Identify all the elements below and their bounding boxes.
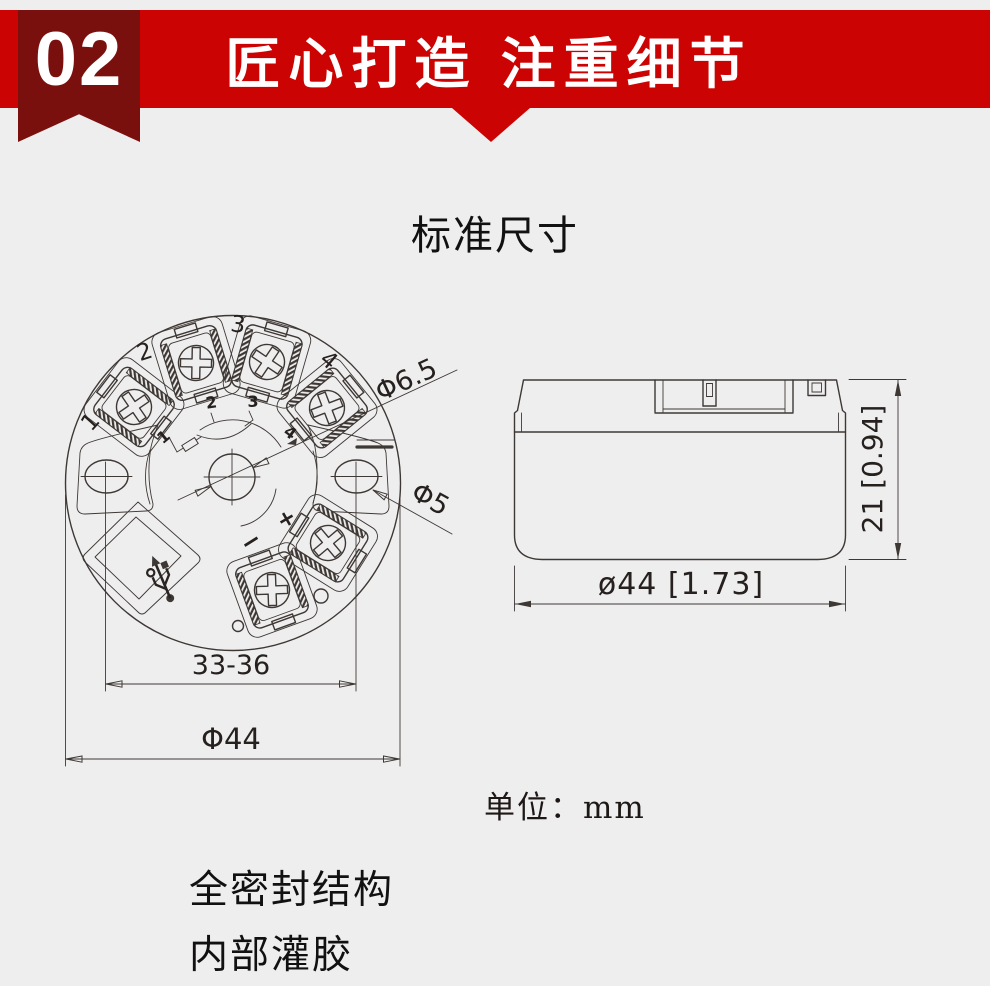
dim-width-label: ø44 [1.73] bbox=[598, 567, 764, 602]
dim-height-label: 21 [0.94] bbox=[856, 405, 889, 534]
schematic-number-3: 3 bbox=[247, 392, 258, 411]
usb-icon bbox=[142, 551, 183, 606]
terminal-plus bbox=[275, 491, 382, 595]
terminal-number-2: 2 bbox=[134, 338, 156, 367]
dim-outer-diameter: Φ44 bbox=[66, 495, 401, 766]
polarity-plus-label: + bbox=[273, 504, 301, 535]
usb-port-pocket bbox=[83, 502, 200, 614]
top-clip bbox=[808, 380, 826, 396]
dim-hole-span: 33-36 bbox=[106, 462, 357, 691]
schematic-number-2: 2 bbox=[204, 392, 218, 412]
dim-height: 21 [0.94] bbox=[849, 380, 906, 560]
connector-recess bbox=[655, 380, 793, 413]
pin-hole-right bbox=[314, 589, 328, 603]
pin-hole-bottom bbox=[233, 621, 244, 632]
feature-text-1: 全密封结构 bbox=[189, 859, 394, 915]
side-view-drawing: 21 [0.94] ø44 [1.73] bbox=[515, 380, 907, 612]
dim-side-hole-label: Φ5 bbox=[406, 477, 455, 523]
dim-hole-span-label: 33-36 bbox=[192, 650, 270, 681]
unit-note: 单位：mm bbox=[484, 782, 646, 827]
dim-center-hole-label: Φ6.5 bbox=[371, 353, 442, 408]
dim-side-hole: Φ5 bbox=[373, 477, 454, 534]
feature-text-2: 内部灌胶 bbox=[189, 924, 353, 980]
page: { "page": { "bg_color": "#efeeee" }, "he… bbox=[0, 0, 990, 986]
dim-width: ø44 [1.73] bbox=[515, 566, 846, 611]
dimension-drawing: 1 2 3 4 1 2 3 4 + − bbox=[0, 0, 990, 986]
top-view-drawing: 1 2 3 4 1 2 3 4 + − bbox=[66, 311, 458, 766]
dim-outer-diameter-label: Φ44 bbox=[201, 722, 261, 756]
